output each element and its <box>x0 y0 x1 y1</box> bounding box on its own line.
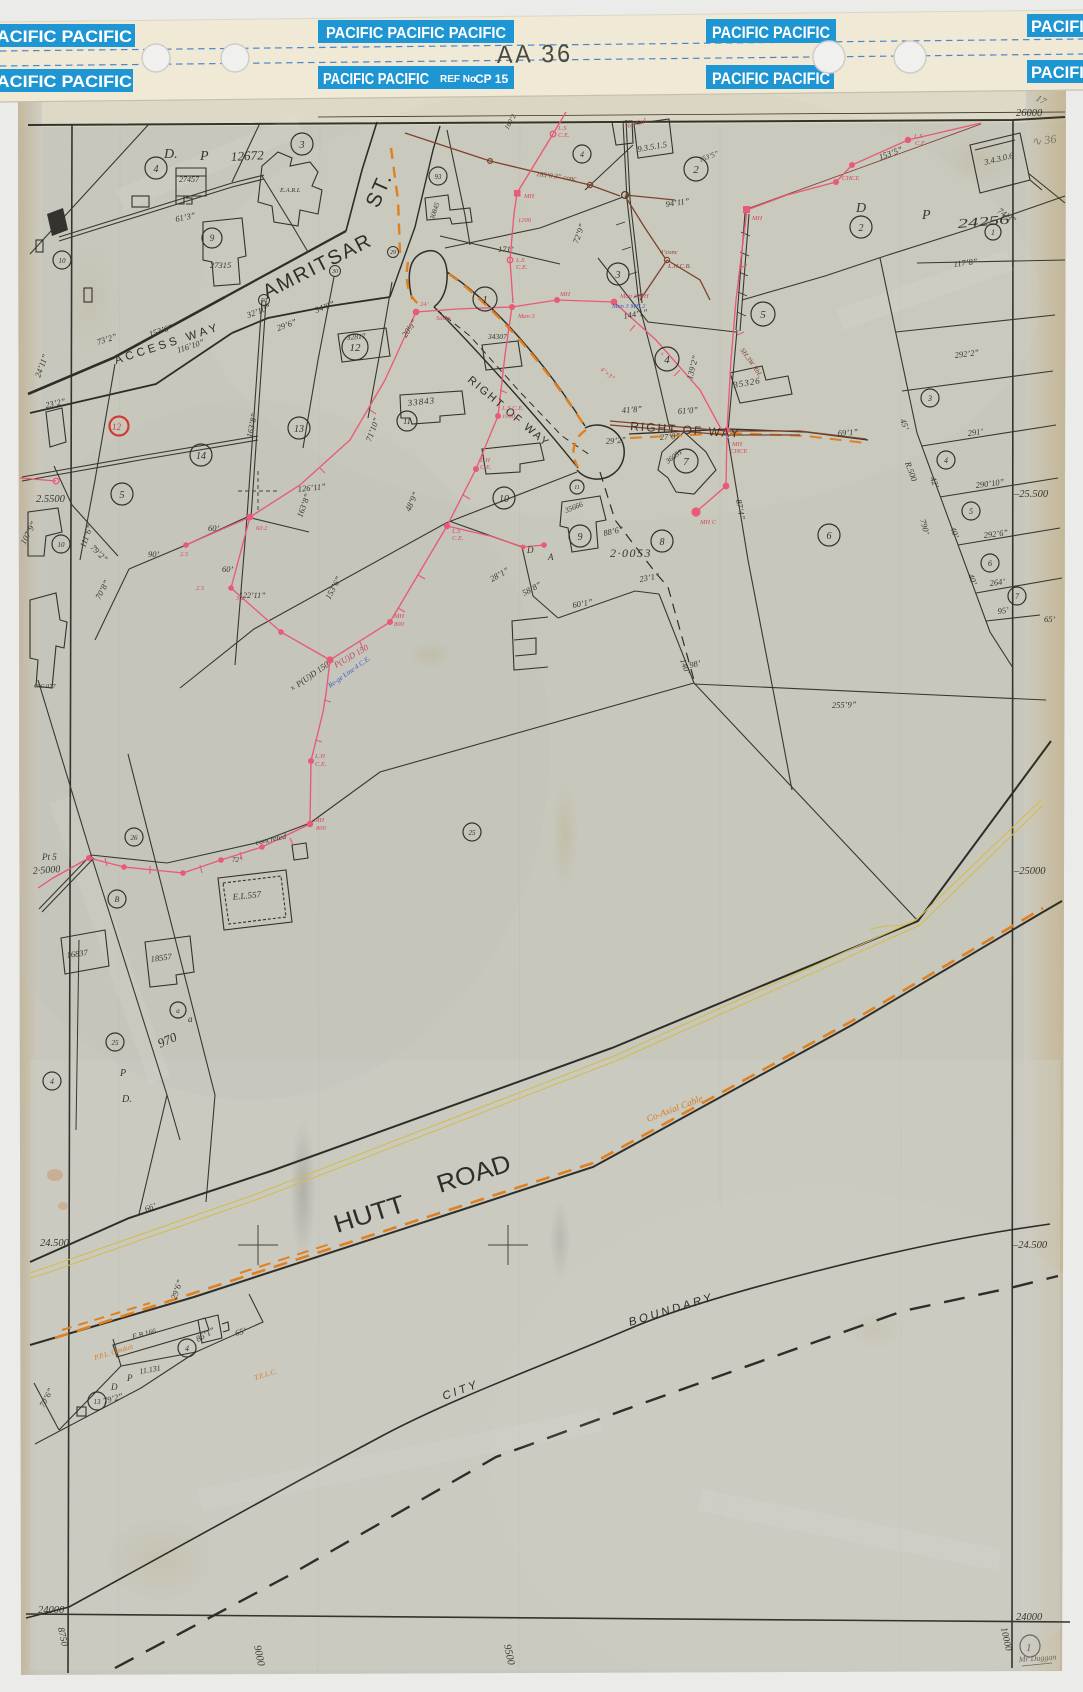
svg-text:2: 2 <box>859 223 864 234</box>
svg-text:CP 15: CP 15 <box>475 72 508 86</box>
svg-text:13: 13 <box>94 1398 102 1406</box>
svg-text:PACIFIC PACIFIC: PACIFIC PACIFIC <box>712 24 830 42</box>
svg-text:90’: 90’ <box>148 549 160 559</box>
svg-text:24.500–: 24.500– <box>40 1238 75 1249</box>
svg-text:Man 3 MH: Man 3 MH <box>619 293 649 300</box>
svg-text:6: 6 <box>827 531 832 542</box>
svg-text:25: 25 <box>469 829 477 837</box>
svg-text:2·0053: 2·0053 <box>610 546 652 560</box>
svg-text:26: 26 <box>131 834 139 842</box>
svg-text:1: 1 <box>1026 1642 1032 1654</box>
svg-text:3: 3 <box>299 140 305 151</box>
svg-text:1: 1 <box>991 228 995 237</box>
svg-text:7: 7 <box>683 456 689 468</box>
svg-text:2.5: 2.5 <box>196 585 205 592</box>
svg-text:C.E.: C.E. <box>558 132 570 139</box>
svg-text:171’: 171’ <box>498 244 514 254</box>
svg-text:MH: MH <box>731 441 742 448</box>
svg-text:a: a <box>188 1014 193 1024</box>
svg-text:5: 5 <box>969 507 973 516</box>
svg-text:26000: 26000 <box>1016 108 1043 119</box>
svg-text:4: 4 <box>154 164 159 175</box>
svg-text:27315: 27315 <box>210 260 231 270</box>
svg-text:255’9”: 255’9” <box>832 699 857 710</box>
svg-text:9: 9 <box>578 532 583 543</box>
svg-text:C.E.: C.E. <box>315 761 327 768</box>
svg-text:PACIFIC PACIFIC: PACIFIC PACIFIC <box>323 71 429 88</box>
svg-text:AA 36: AA 36 <box>497 40 573 69</box>
svg-text:MH: MH <box>393 613 404 620</box>
svg-text:24’: 24’ <box>420 301 429 308</box>
svg-text:4: 4 <box>185 1344 189 1353</box>
svg-text:a: a <box>176 1007 180 1015</box>
svg-text:800: 800 <box>316 825 327 832</box>
svg-text:P: P <box>119 1068 126 1079</box>
svg-text:L.S C.E.: L.S C.E. <box>501 405 524 412</box>
svg-text:–25.500: –25.500 <box>1013 489 1049 500</box>
svg-text:25: 25 <box>112 1039 120 1047</box>
svg-text:3: 3 <box>927 394 932 403</box>
svg-text:REF No: REF No <box>440 74 476 85</box>
svg-text:14: 14 <box>196 451 206 462</box>
svg-text:C.E.: C.E. <box>480 464 492 471</box>
svg-text:264’: 264’ <box>989 576 1006 588</box>
svg-text:CHCE: CHCE <box>730 448 747 455</box>
svg-text:41’8”: 41’8” <box>621 404 642 415</box>
svg-text:L.S: L.S <box>515 257 525 264</box>
svg-text:95’: 95’ <box>997 605 1010 616</box>
svg-text:–24.500: –24.500 <box>1012 1240 1048 1251</box>
svg-text:4: 4 <box>50 1077 54 1086</box>
svg-text:D: D <box>855 201 866 216</box>
svg-text:29: 29 <box>390 250 396 256</box>
svg-text:291’: 291’ <box>967 426 984 438</box>
svg-text:4: 4 <box>580 150 584 159</box>
svg-text:E.A.R.L: E.A.R.L <box>279 187 301 194</box>
svg-text:Pt 5: Pt 5 <box>41 852 57 862</box>
svg-text:P: P <box>199 149 209 164</box>
svg-text:L.S: L.S <box>913 133 923 140</box>
svg-text:MH: MH <box>523 193 534 200</box>
svg-text:Samp: Samp <box>436 315 451 322</box>
svg-text:–25000: –25000 <box>1013 866 1046 877</box>
svg-text:30: 30 <box>331 269 338 275</box>
svg-text:2.5500: 2.5500 <box>36 494 66 505</box>
svg-text:4: 4 <box>944 456 948 465</box>
svg-text:3.2: 3.2 <box>235 595 245 602</box>
svg-text:1: 1 <box>482 294 488 306</box>
svg-text:61’0”: 61’0” <box>677 405 698 416</box>
svg-text:27’0”: 27’0” <box>659 431 680 442</box>
svg-text:C.E.: C.E. <box>516 264 528 271</box>
svg-text:13: 13 <box>294 424 304 435</box>
svg-text:60’: 60’ <box>208 523 220 533</box>
svg-text:60’: 60’ <box>222 564 234 574</box>
svg-text:MH C: MH C <box>699 519 717 526</box>
svg-text:6: 6 <box>988 559 992 568</box>
svg-text:PACIFIC PACIFIC: PACIFIC PACIFIC <box>0 73 132 91</box>
svg-text:PACIFI: PACIFI <box>1031 64 1083 82</box>
svg-text:Man 3: Man 3 <box>517 313 536 320</box>
svg-text:L.H: L.H <box>314 753 325 760</box>
svg-text:MH: MH <box>751 215 762 222</box>
svg-text:12: 12 <box>350 342 362 354</box>
svg-text:Man 3 MH 2: Man 3 MH 2 <box>611 303 646 310</box>
svg-text:L.S: L.S <box>557 125 567 132</box>
svg-text:2: 2 <box>693 164 699 176</box>
svg-text:72’: 72’ <box>232 856 242 864</box>
svg-text:27457: 27457 <box>179 175 200 184</box>
svg-text:12672: 12672 <box>230 147 264 164</box>
svg-text:10: 10 <box>59 257 67 265</box>
svg-text:1000: 1000 <box>502 413 516 420</box>
svg-text:60.2: 60.2 <box>256 525 268 532</box>
svg-text:5: 5 <box>120 490 125 501</box>
svg-text:4’conc: 4’conc <box>660 249 678 256</box>
svg-text:50: 50 <box>261 298 267 304</box>
svg-text:29’2”: 29’2” <box>605 435 626 446</box>
svg-text:4: 4 <box>664 354 670 366</box>
svg-text:D.: D. <box>121 1094 132 1105</box>
svg-text:PACIFI: PACIFI <box>1031 18 1083 36</box>
svg-text:D: D <box>110 1382 118 1392</box>
svg-text:800: 800 <box>394 621 405 628</box>
svg-text:10: 10 <box>58 541 66 549</box>
svg-text:69’1”: 69’1” <box>837 427 858 438</box>
svg-text:34307: 34307 <box>487 332 507 341</box>
svg-text:2·5000: 2·5000 <box>32 864 60 877</box>
svg-text:D.: D. <box>163 147 178 162</box>
svg-text:P: P <box>126 1373 133 1383</box>
svg-text:24000: 24000 <box>38 1605 65 1616</box>
svg-text:11: 11 <box>403 417 410 426</box>
svg-text:P: P <box>921 208 931 223</box>
svg-text:CHCE: CHCE <box>842 175 859 182</box>
svg-text:MH: MH <box>559 291 570 298</box>
svg-text:L.S: L.S <box>451 528 461 535</box>
svg-text:10: 10 <box>499 494 509 505</box>
svg-text:PACIFIC PACIFIC: PACIFIC PACIFIC <box>0 28 132 46</box>
svg-text:93: 93 <box>435 173 443 181</box>
svg-text:C.C.077: C.C.077 <box>34 683 56 690</box>
svg-text:C.E.: C.E. <box>452 535 464 542</box>
svg-text:9: 9 <box>210 233 215 243</box>
svg-text:24000: 24000 <box>1016 1612 1043 1623</box>
svg-text:65’: 65’ <box>1044 614 1056 624</box>
svg-text:L.H.C.B.: L.H.C.B. <box>667 263 691 270</box>
svg-text:5: 5 <box>760 309 766 321</box>
svg-text:B: B <box>115 895 120 904</box>
svg-text:3: 3 <box>615 270 621 281</box>
svg-text:8: 8 <box>660 537 665 548</box>
svg-text:1200: 1200 <box>518 217 532 224</box>
svg-text:12: 12 <box>112 422 122 432</box>
svg-text:2.5: 2.5 <box>180 551 189 558</box>
svg-text:MH: MH <box>313 817 324 824</box>
svg-text:11: 11 <box>574 485 580 491</box>
svg-text:PACIFIC PACIFIC: PACIFIC PACIFIC <box>712 70 830 88</box>
svg-text:D: D <box>526 545 534 555</box>
svg-text:PACIFIC PACIFIC PACIFIC: PACIFIC PACIFIC PACIFIC <box>326 25 506 42</box>
svg-text:A: A <box>547 552 554 562</box>
svg-text:L.H: L.H <box>479 457 490 464</box>
svg-text:C.E.: C.E. <box>915 140 927 147</box>
